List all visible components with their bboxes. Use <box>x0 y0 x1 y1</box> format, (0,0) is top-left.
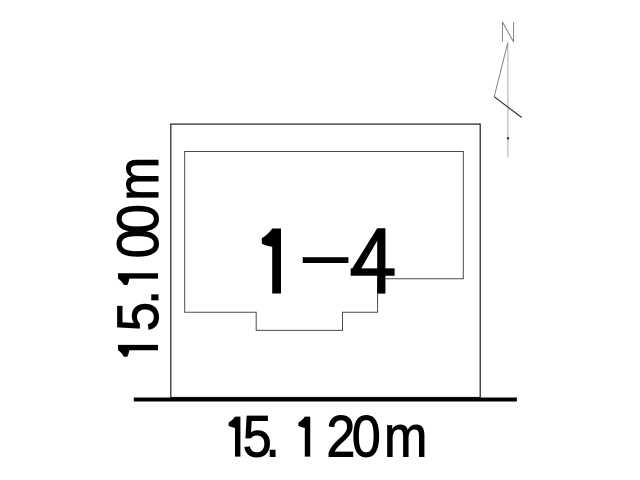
svg-text:15.120m: 15.120m <box>225 404 428 469</box>
svg-text:15.100m: 15.100m <box>106 157 171 363</box>
